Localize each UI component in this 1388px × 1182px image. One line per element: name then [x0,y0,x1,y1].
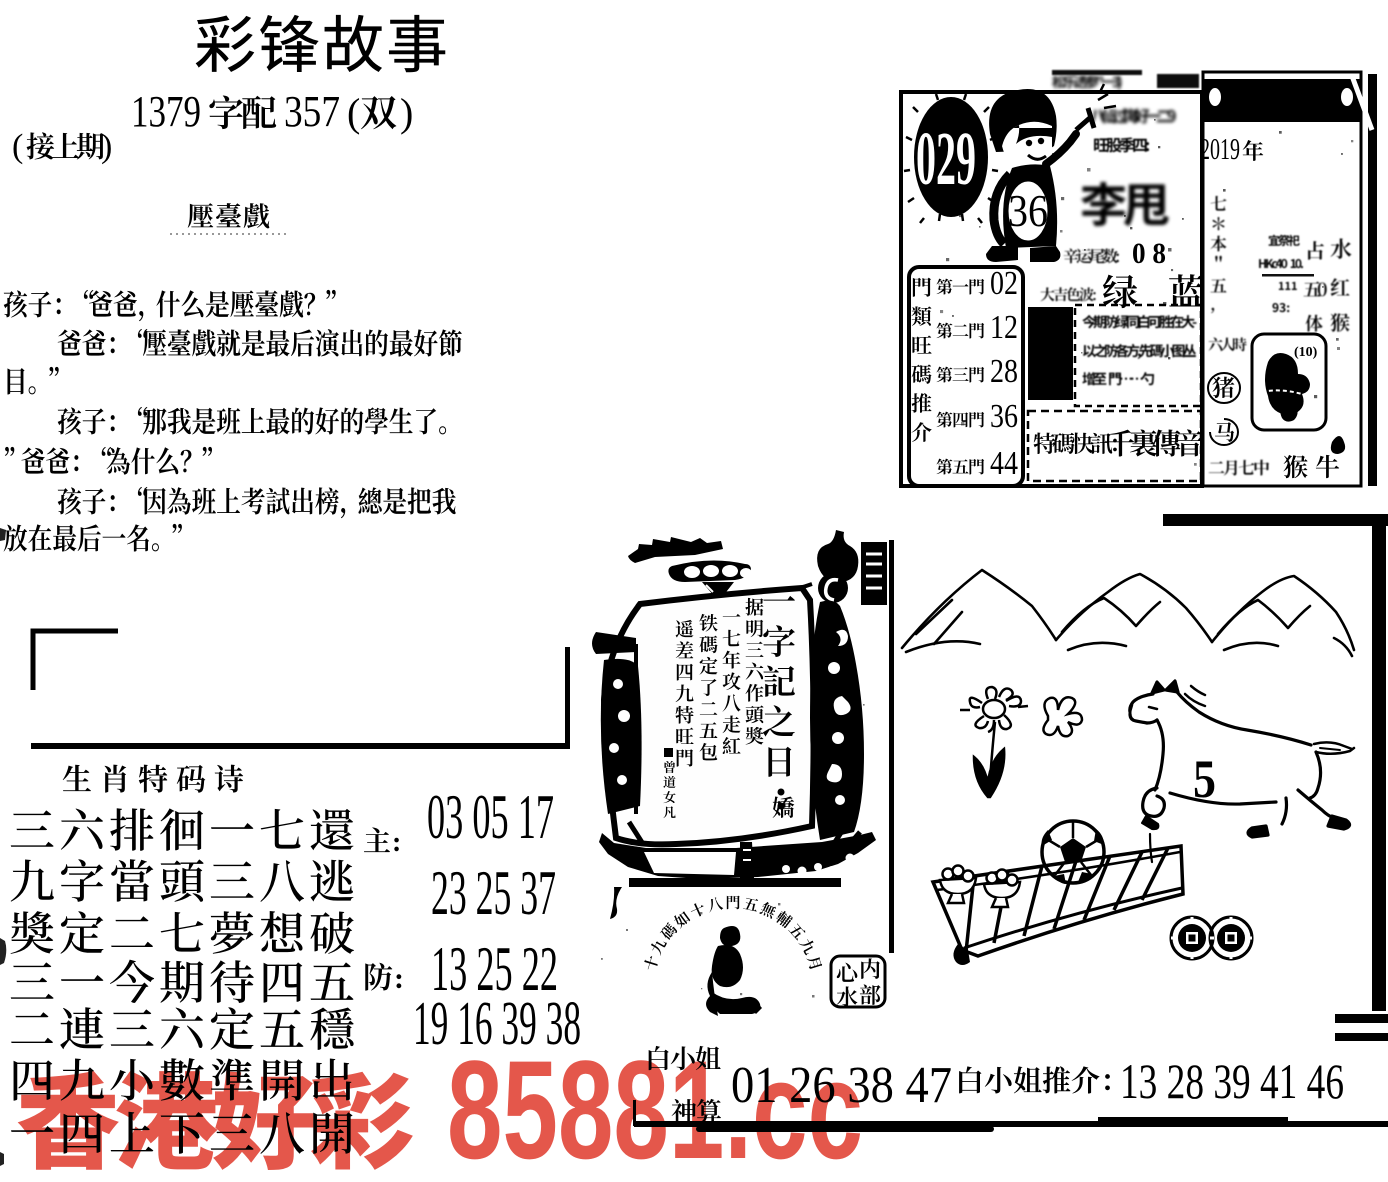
svg-text:13 28 39 41 46: 13 28 39 41 46 [1120,1053,1344,1109]
svg-text:(: ( [12,128,23,165]
svg-text:(10): (10) [1294,345,1318,360]
svg-text:): ) [400,90,413,135]
svg-text:36: 36 [1008,185,1048,236]
svg-text:28: 28 [990,353,1018,390]
svg-text:0 8: 0 8 [1132,237,1166,270]
svg-text:2019: 2019 [1200,131,1240,166]
svg-text:03 05 17: 03 05 17 [427,781,554,852]
svg-text:44: 44 [990,445,1018,482]
svg-text:1379: 1379 [131,87,201,136]
svg-text:19 16 39 38: 19 16 39 38 [413,990,581,1058]
svg-text:23 25 37: 23 25 37 [431,857,556,928]
svg-text:12: 12 [990,309,1018,346]
svg-text:): ) [101,128,112,165]
svg-text:(: ( [347,90,360,135]
svg-text:5: 5 [1193,749,1216,809]
svg-text:01 26 38 47: 01 26 38 47 [731,1057,952,1114]
svg-text:029: 029 [916,117,976,201]
svg-text:357: 357 [284,87,340,136]
svg-text::: : [392,827,401,858]
svg-text::: : [394,962,404,995]
svg-text:02: 02 [990,265,1018,302]
svg-text:36: 36 [990,398,1018,435]
